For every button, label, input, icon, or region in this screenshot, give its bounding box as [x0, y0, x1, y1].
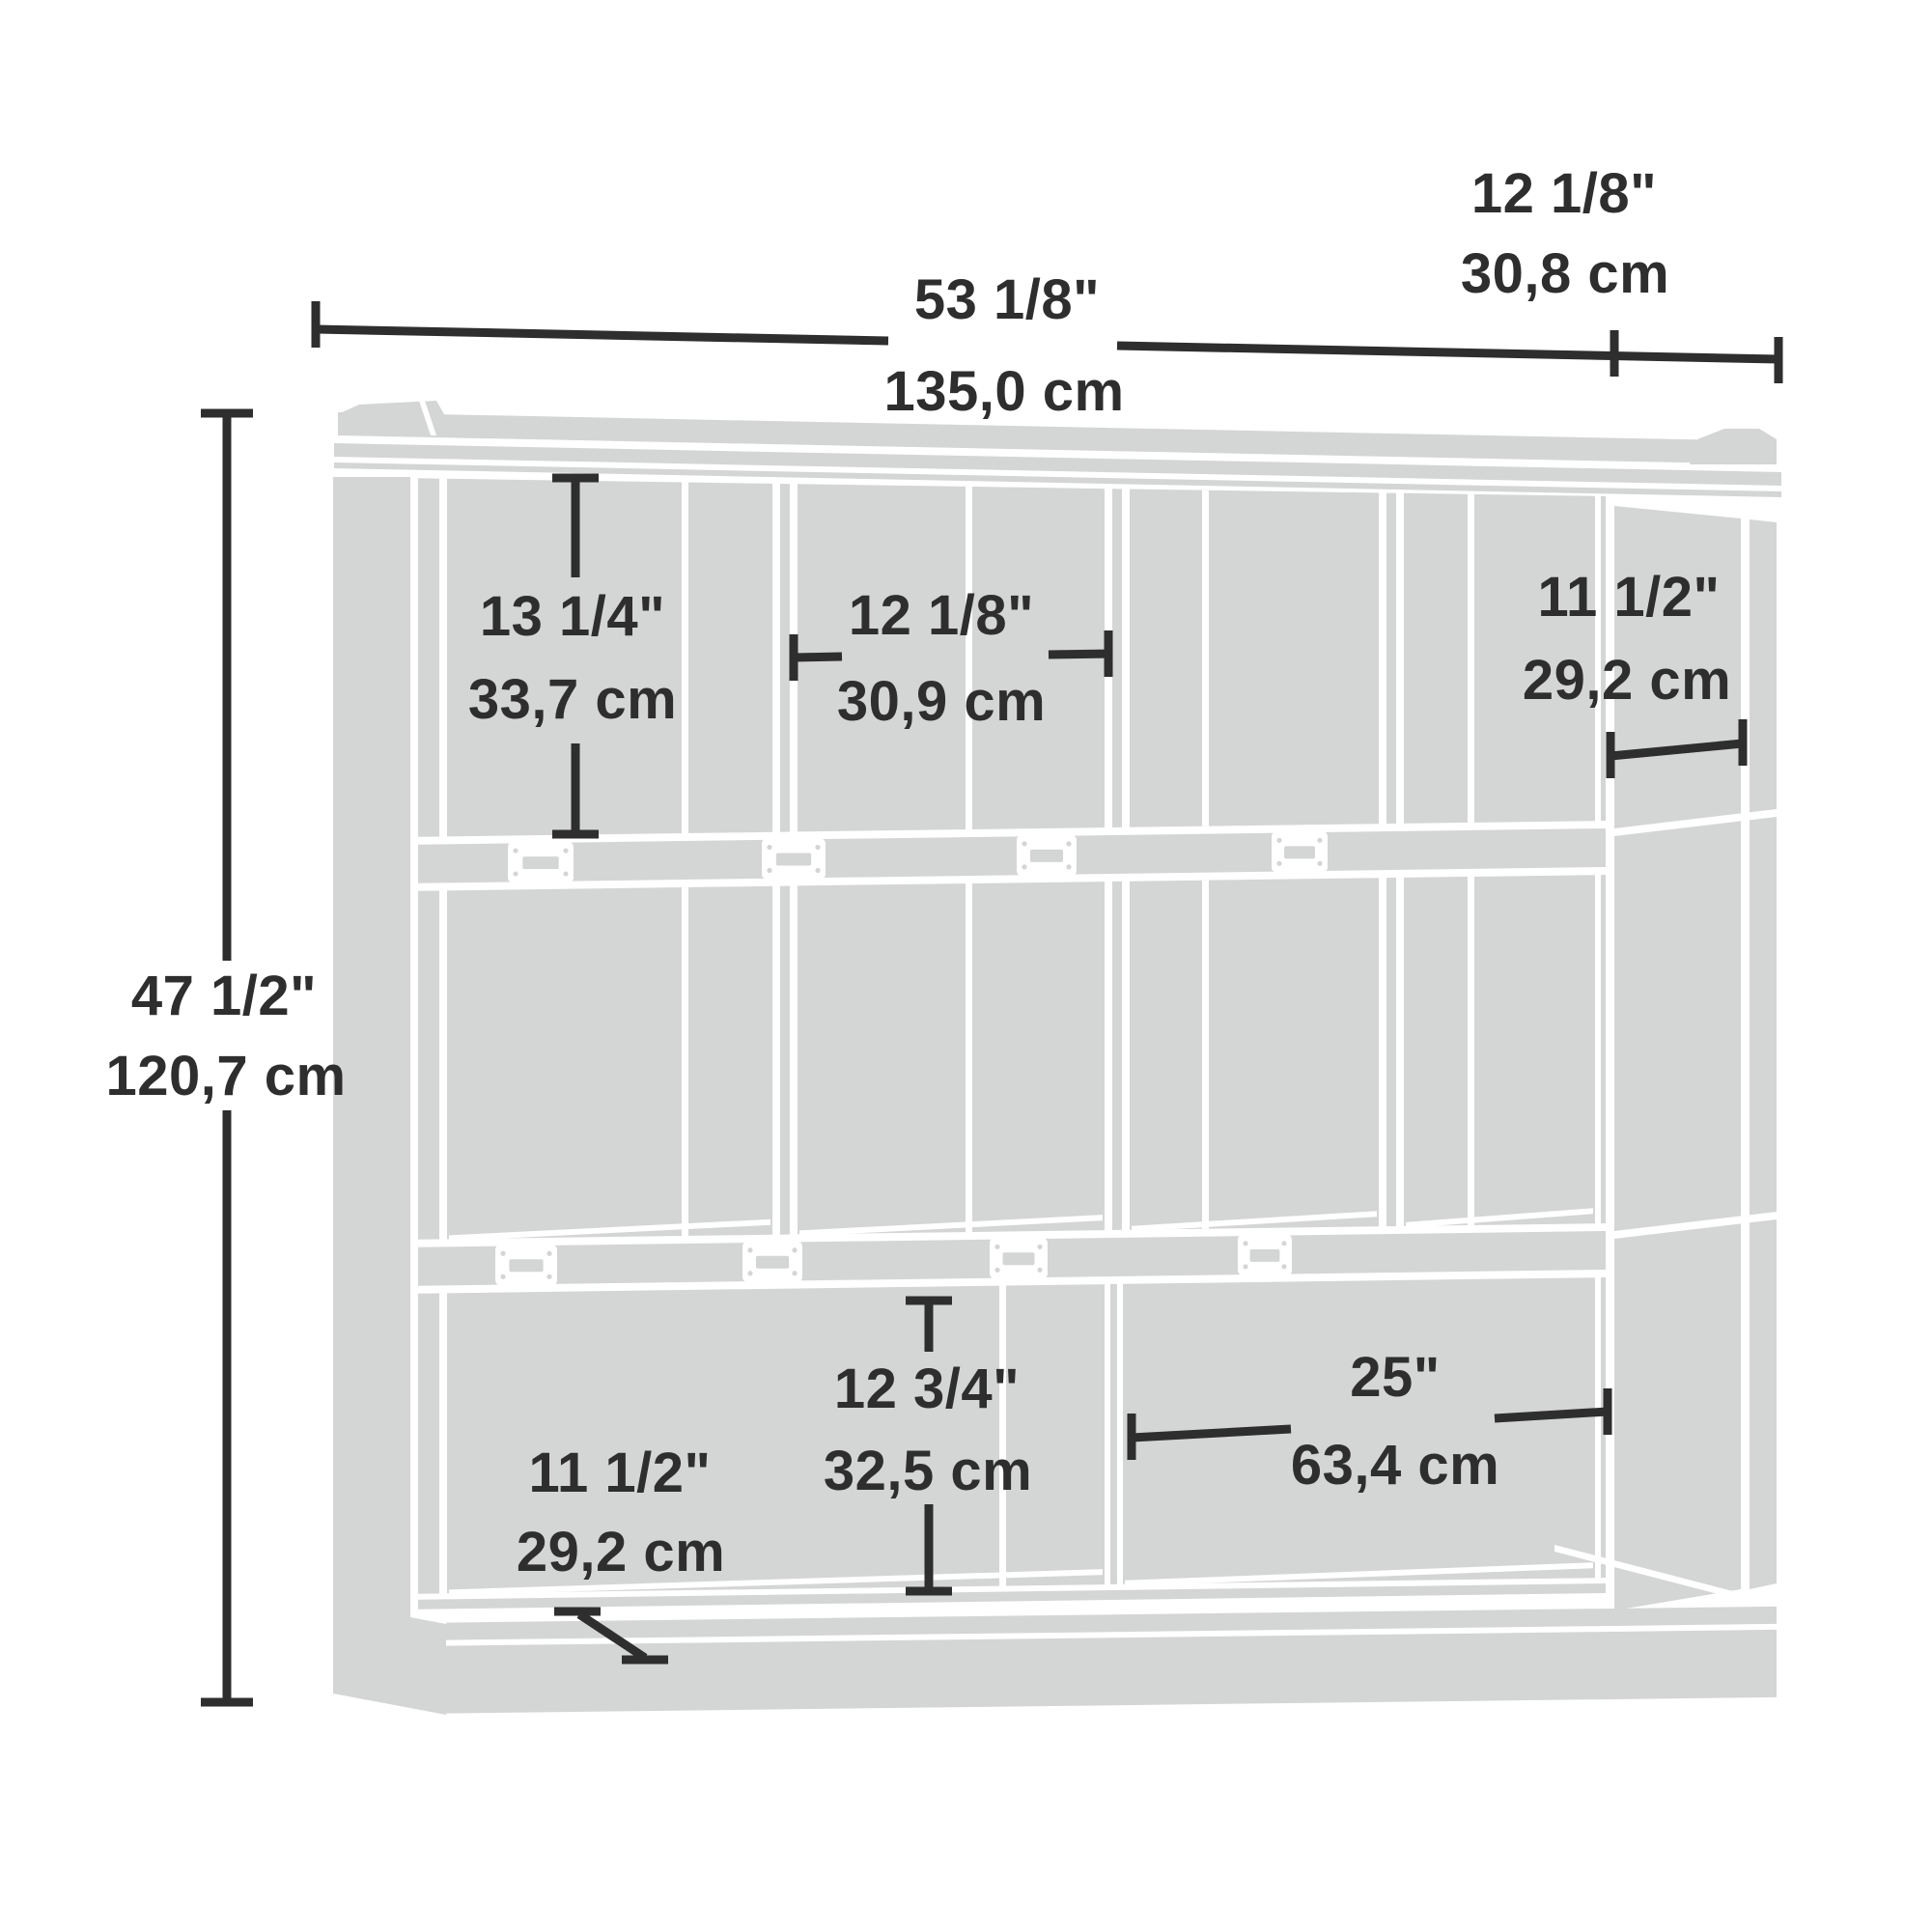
label-plate-screw [767, 845, 771, 850]
label-cubby-bottom-depth-cm: 29,2 cm [517, 1521, 725, 1583]
label-plate-slot [776, 853, 811, 865]
shelf-label-plate [742, 1242, 802, 1282]
dimension-diagram: 12 1/8" 30,8 cm 53 1/8" 135,0 cm 47 1/2"… [0, 0, 1932, 1932]
label-plate-screw [500, 1274, 505, 1279]
label-cubby-bottom-depth-in: 11 1/2" [528, 1442, 711, 1504]
cubby-inner-seam [1202, 490, 1209, 826]
label-plate-screw [815, 868, 820, 873]
label-depth-top-in: 12 1/8" [1471, 162, 1657, 225]
label-plate-screw [1281, 1241, 1286, 1246]
label-cubby-bottom-height-cm: 32,5 cm [824, 1440, 1032, 1502]
divider-stile [418, 478, 439, 837]
cubby-panel [447, 886, 772, 1240]
label-plate-screw [1066, 841, 1071, 846]
cubby-inner-seam [682, 887, 688, 1236]
label-plate-screw [1037, 1245, 1042, 1249]
label-cubby-top-depth-in: 11 1/2" [1537, 566, 1720, 629]
cubby-panel [798, 882, 1105, 1234]
label-plate-slot [1284, 846, 1315, 858]
label-plate-screw [792, 1271, 797, 1275]
label-plate-screw [1317, 838, 1322, 843]
cubby-inner-seam [999, 1286, 1006, 1586]
shelf-label-plate [508, 842, 574, 882]
divider-stile [1112, 882, 1122, 1230]
cubby-inner-seam [1202, 881, 1209, 1229]
cubby-inner-seam [966, 487, 972, 829]
divider-stile [780, 484, 790, 832]
label-plate-screw [815, 845, 820, 850]
divider-stile [418, 1294, 439, 1594]
label-plate-screw [1243, 1264, 1247, 1269]
divider-stile [1110, 1284, 1117, 1584]
label-plate-screw [546, 1251, 551, 1256]
label-cubby-bottom-width-in: 25" [1350, 1346, 1441, 1409]
cubby-panel [1404, 875, 1595, 1226]
shelf-label-plate [762, 838, 826, 879]
label-plate-slot [1030, 850, 1063, 862]
label-plate-screw [1276, 838, 1281, 843]
label-plate-screw [767, 868, 771, 873]
label-plate-screw [546, 1274, 551, 1279]
shelf-label-plate [495, 1245, 557, 1285]
label-plate-screw [500, 1251, 505, 1256]
cubby-panel [447, 479, 772, 837]
label-plate-screw [1022, 841, 1026, 846]
label-plate-screw [563, 848, 568, 853]
label-plate-screw [747, 1247, 752, 1252]
label-cubby-top-height-cm: 33,7 cm [468, 668, 677, 731]
right-back-edge [1750, 519, 1777, 1589]
label-plate-screw [563, 871, 568, 876]
divider-stile [418, 891, 439, 1240]
shelf-label-plate [1238, 1235, 1292, 1275]
divider-stile [1386, 493, 1396, 824]
label-plate-slot [756, 1256, 789, 1269]
label-plate-slot [509, 1259, 543, 1272]
label-plate-screw [513, 848, 518, 853]
label-cubby-top-width-cm: 30,9 cm [837, 670, 1046, 733]
cubby-panel [1130, 878, 1379, 1229]
label-plate-screw [1037, 1268, 1042, 1273]
divider-stile [1112, 489, 1122, 827]
label-plate-slot [522, 856, 558, 869]
label-plate-screw [1317, 861, 1322, 866]
label-cubby-bottom-height-in: 12 3/4" [834, 1358, 1020, 1420]
label-plate-screw [1066, 864, 1071, 869]
label-depth-top-cm: 30,8 cm [1461, 242, 1669, 305]
base-left-cap [333, 1603, 446, 1715]
diagram-svg: 12 1/8" 30,8 cm 53 1/8" 135,0 cm 47 1/2"… [0, 0, 1932, 1932]
label-height-left-cm: 120,7 cm [105, 1045, 346, 1107]
label-plate-slot [1003, 1252, 1035, 1265]
cubby-panel [1130, 490, 1379, 827]
cubby-inner-seam [966, 883, 972, 1232]
shelf-label-plate [1272, 831, 1328, 872]
label-height-left-in: 47 1/2" [131, 965, 317, 1027]
crown-right-cap [1690, 429, 1777, 464]
label-plate-screw [1281, 1264, 1286, 1269]
label-plate-screw [1276, 861, 1281, 866]
label-width-top-cm: 135,0 cm [883, 360, 1124, 423]
label-plate-slot [1250, 1249, 1280, 1262]
shelf-label-plate [990, 1238, 1048, 1278]
cubby-inner-seam [1468, 877, 1474, 1225]
label-cubby-top-height-in: 13 1/4" [480, 585, 665, 648]
divider-stile [1386, 878, 1396, 1226]
label-cubby-top-depth-cm: 29,2 cm [1523, 649, 1731, 712]
divider-stile [780, 886, 790, 1235]
label-plate-screw [513, 871, 518, 876]
shelf-label-plate [1017, 835, 1077, 876]
label-plate-screw [1243, 1241, 1247, 1246]
cubby-inner-seam [682, 483, 688, 834]
label-width-top-in: 53 1/8" [914, 268, 1100, 331]
label-plate-screw [994, 1245, 999, 1249]
label-plate-screw [747, 1271, 752, 1275]
label-plate-screw [1022, 864, 1026, 869]
label-plate-screw [994, 1268, 999, 1273]
label-cubby-bottom-width-cm: 63,4 cm [1291, 1434, 1499, 1497]
label-cubby-top-width-in: 12 1/8" [849, 584, 1034, 647]
label-plate-screw [792, 1247, 797, 1252]
divider-stile [1601, 875, 1606, 1223]
cubby-inner-seam [1468, 494, 1474, 823]
